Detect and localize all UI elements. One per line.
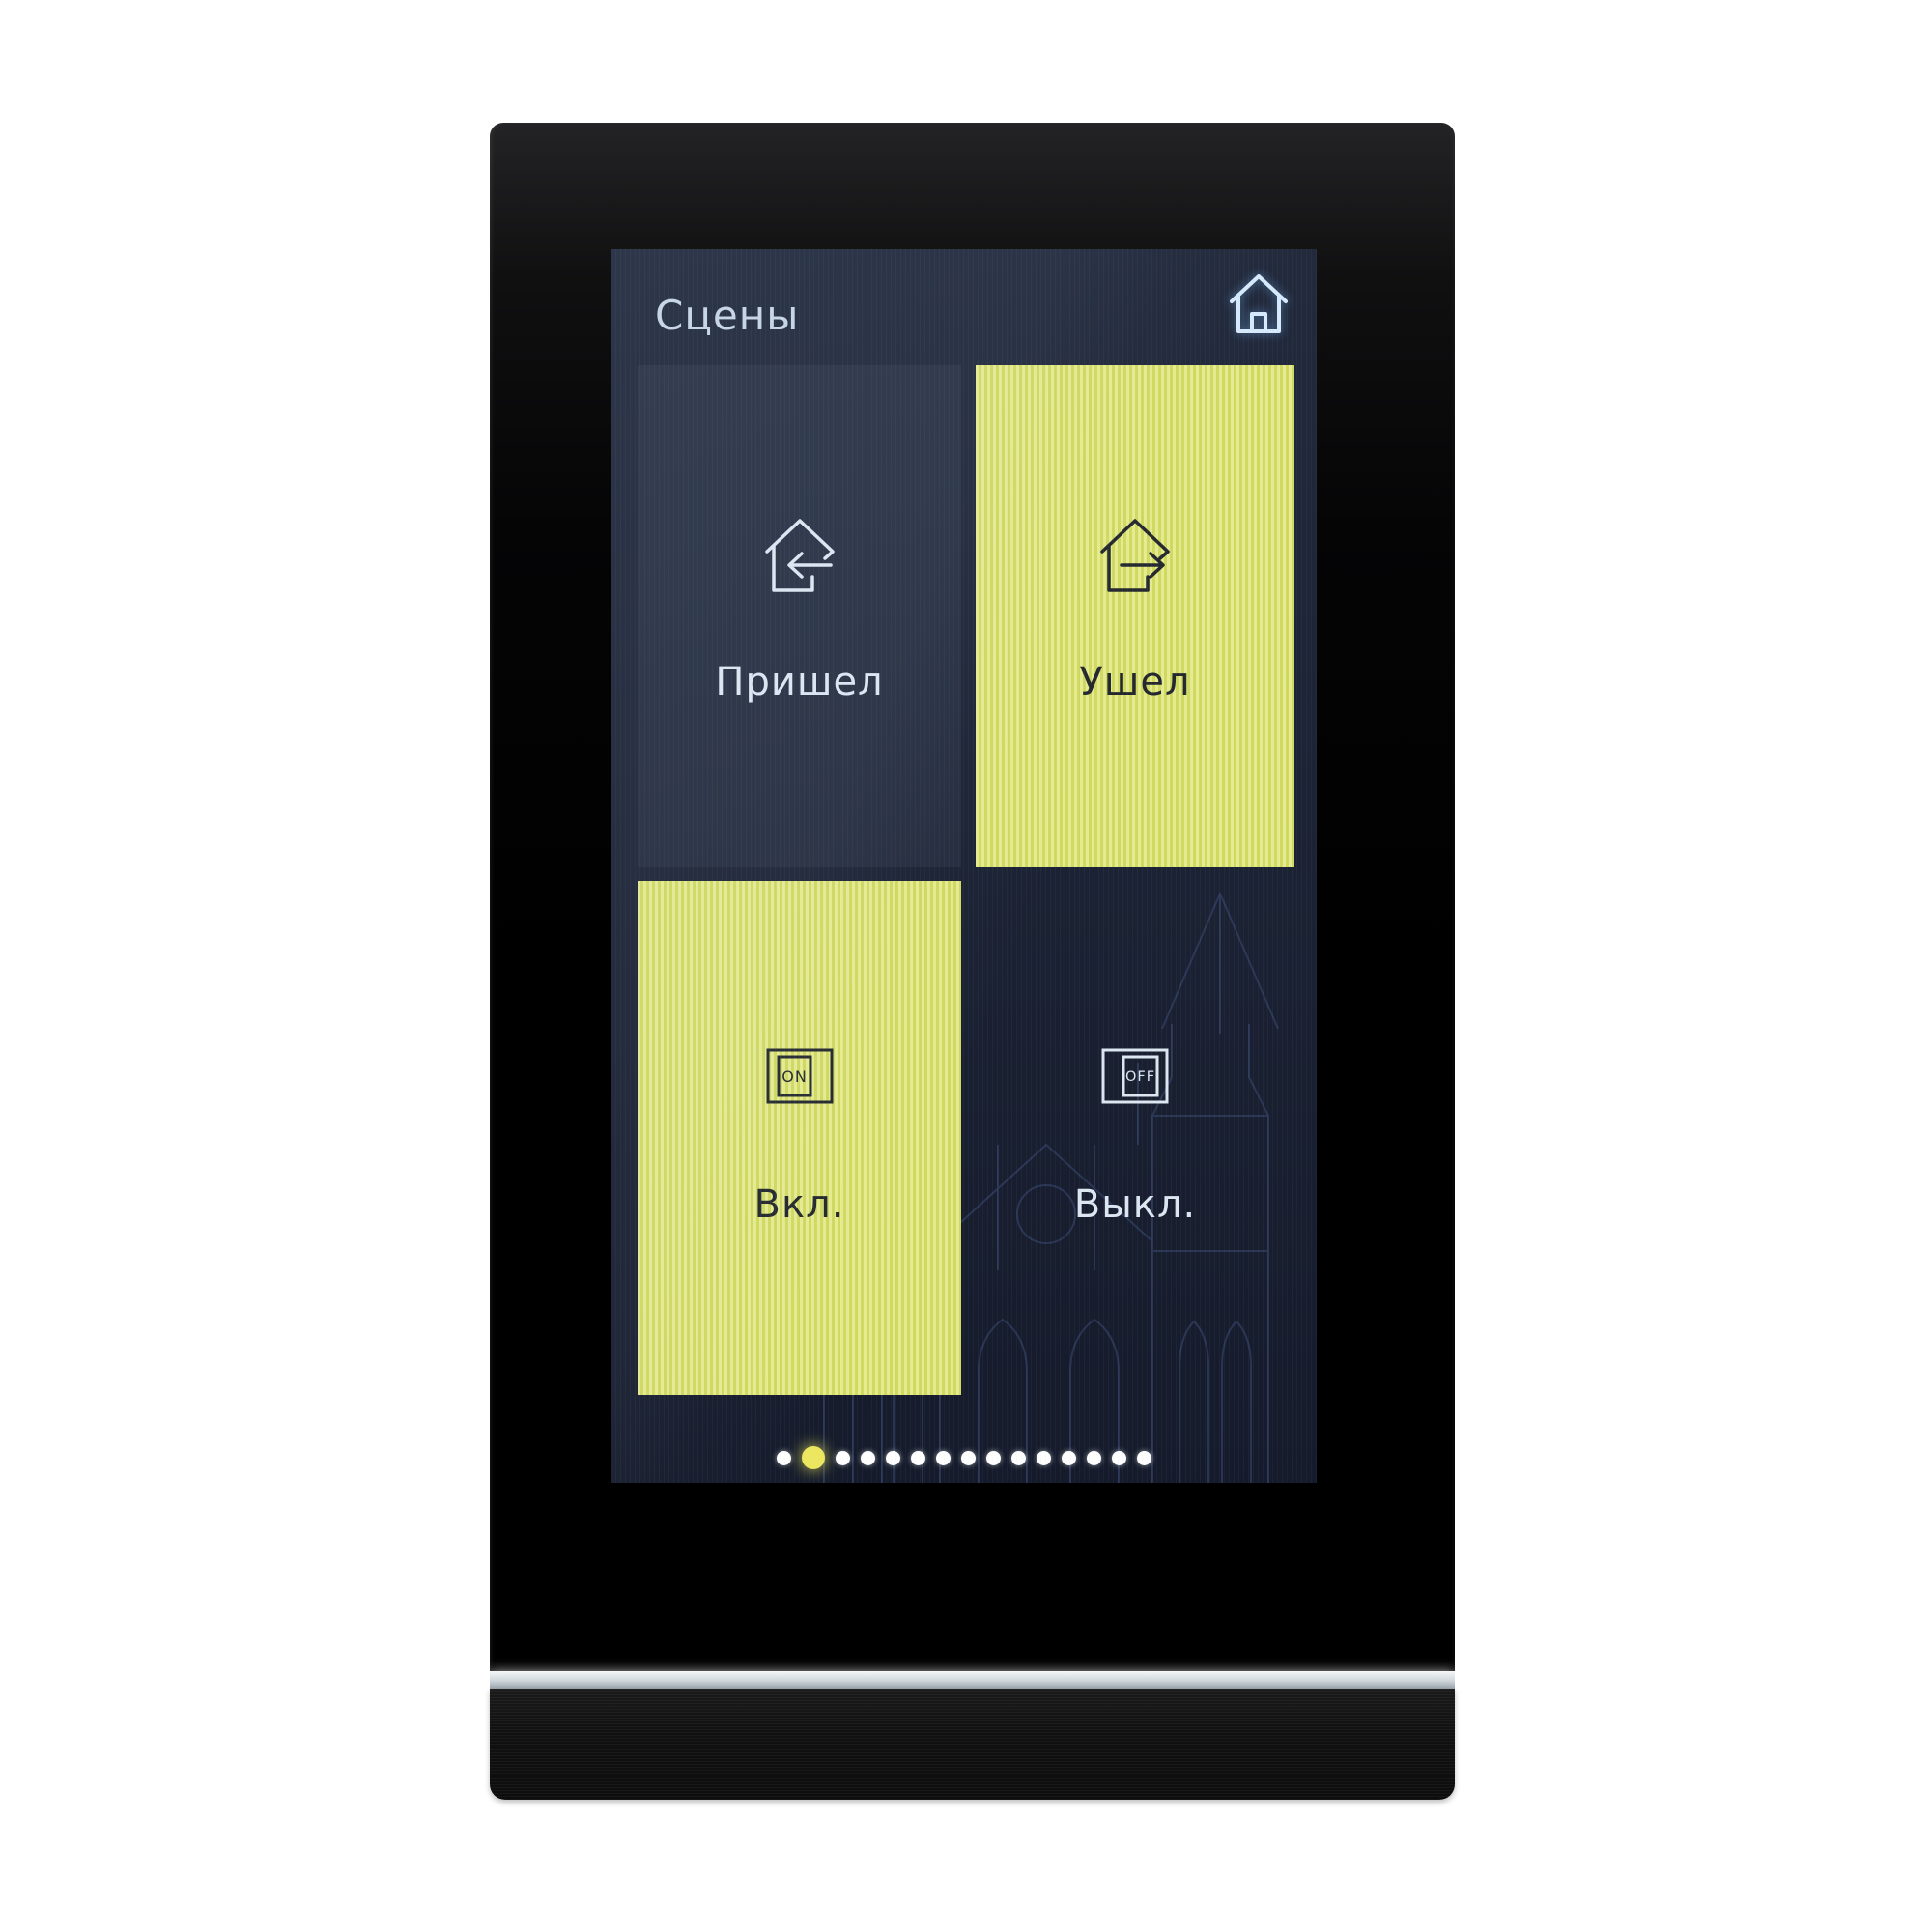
proximity-light-bar [490,1671,1455,1689]
page-dot[interactable] [861,1451,875,1465]
scene-tile-on[interactable]: ON Вкл. [638,881,961,1395]
page-dot[interactable] [911,1451,925,1465]
house-arrow-in-icon [761,516,838,597]
page-dot-active[interactable] [802,1446,825,1469]
page-dot[interactable] [1037,1451,1051,1465]
touchscreen: Сцены [611,249,1317,1483]
page-dot[interactable] [777,1451,791,1465]
svg-text:OFF: OFF [1125,1069,1155,1085]
page-dot[interactable] [886,1451,900,1465]
home-icon [1228,271,1290,337]
home-button[interactable] [1224,270,1293,340]
page-dot[interactable] [986,1451,1001,1465]
page-background: Сцены [0,0,1932,1932]
page-dot[interactable] [1011,1451,1026,1465]
scene-tile-arrived[interactable]: Пришел [638,365,961,867]
scene-tile-label: Выкл. [1074,1182,1196,1227]
scene-tile-label: Вкл. [754,1182,845,1227]
page-dot[interactable] [836,1451,850,1465]
svg-text:ON: ON [781,1067,808,1086]
scene-tile-label: Ушел [1079,660,1190,704]
scene-tile-off[interactable]: OFF Выкл. [976,881,1294,1395]
page-title: Сцены [655,292,799,339]
page-dot[interactable] [961,1451,976,1465]
device-glass-front: Сцены [490,123,1455,1671]
switch-on-icon: ON [766,1048,834,1104]
page-dot[interactable] [1137,1451,1151,1465]
touch-panel-device: Сцены [490,123,1455,1800]
scene-tile-label: Пришел [715,660,883,704]
page-dot[interactable] [1112,1451,1126,1465]
page-dot[interactable] [1087,1451,1101,1465]
page-indicator [611,1443,1317,1472]
scene-tile-left-home[interactable]: Ушел [976,365,1294,867]
device-base [490,1689,1455,1800]
page-dot[interactable] [1062,1451,1076,1465]
house-arrow-out-icon [1096,516,1174,597]
page-dot[interactable] [936,1451,951,1465]
switch-off-icon: OFF [1101,1048,1169,1104]
